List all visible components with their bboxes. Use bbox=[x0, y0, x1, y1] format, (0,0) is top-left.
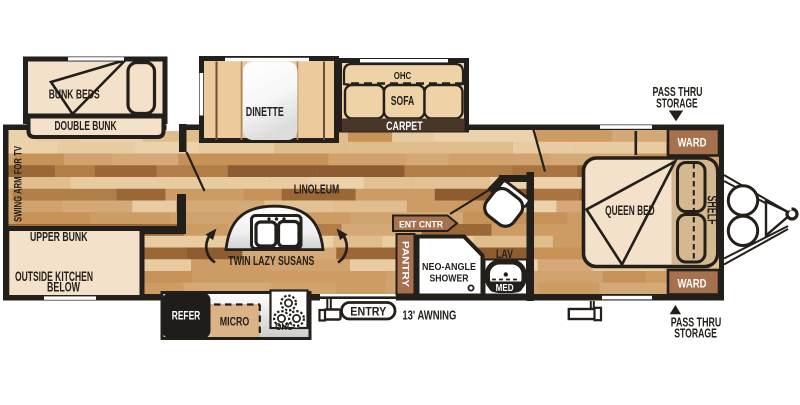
svg-text:ENTRY: ENTRY bbox=[350, 306, 386, 318]
svg-text:13' AWNING: 13' AWNING bbox=[402, 307, 456, 322]
svg-text:WARD: WARD bbox=[678, 277, 707, 291]
svg-text:LINOLEUM: LINOLEUM bbox=[294, 183, 340, 197]
svg-text:MED: MED bbox=[496, 283, 514, 294]
svg-text:DOUBLE BUNK: DOUBLE BUNK bbox=[55, 119, 117, 133]
svg-text:WARD: WARD bbox=[678, 135, 707, 149]
svg-text:BELOW: BELOW bbox=[47, 280, 80, 295]
svg-text:CARPET: CARPET bbox=[386, 119, 423, 133]
svg-text:SOFA: SOFA bbox=[391, 93, 415, 108]
svg-text:DINETTE: DINETTE bbox=[246, 105, 284, 119]
svg-text:PANTRY: PANTRY bbox=[401, 241, 411, 287]
svg-text:SHELF: SHELF bbox=[704, 196, 721, 225]
svg-text:ENT CNTR: ENT CNTR bbox=[399, 219, 443, 230]
svg-text:SHOWER: SHOWER bbox=[430, 273, 469, 285]
svg-text:OHC: OHC bbox=[275, 321, 293, 333]
svg-text:MICRO: MICRO bbox=[220, 317, 250, 329]
svg-text:UPPER BUNK: UPPER BUNK bbox=[30, 230, 88, 244]
svg-text:NEO-ANGLE: NEO-ANGLE bbox=[422, 261, 476, 273]
svg-text:STORAGE: STORAGE bbox=[656, 96, 698, 110]
svg-text:QUEEN BED: QUEEN BED bbox=[605, 203, 655, 218]
svg-text:BUNK BEDS: BUNK BEDS bbox=[49, 86, 100, 101]
svg-text:SWING ARM FOR TV: SWING ARM FOR TV bbox=[13, 146, 25, 222]
svg-text:REFER: REFER bbox=[172, 311, 201, 323]
svg-text:TWIN LAZY SUSANS: TWIN LAZY SUSANS bbox=[228, 253, 314, 268]
svg-text:LAV: LAV bbox=[496, 247, 513, 261]
svg-text:STORAGE: STORAGE bbox=[674, 327, 717, 341]
svg-text:OHC: OHC bbox=[394, 70, 412, 82]
